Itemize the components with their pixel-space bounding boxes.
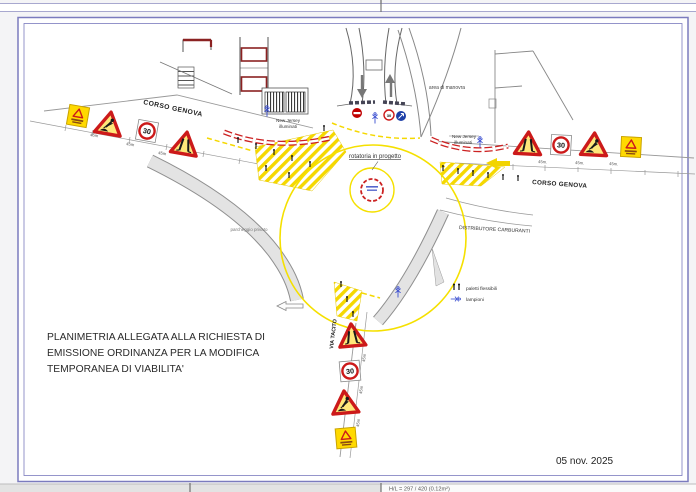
distance-label: 45m [361,353,367,362]
drawing-date: 05 nov. 2025 [556,456,614,467]
legend-lamps-label: lampioni [466,297,484,303]
speed-limit-30-sign [339,360,361,382]
sheet-size-info: H/L = 297 / 420 (0.12m²) [389,487,450,492]
label-new-jersey-east-line2: illuminati [454,140,472,145]
label-new-jersey-west-line2: illuminati [279,124,297,129]
mini-speed-limit-sign: 30 [384,110,394,120]
note-line-1: PLANIMETRIA ALLEGATA ALLA RICHIESTA DI [47,332,265,343]
distance-label: 45m [355,418,361,427]
speed-limit-30-sign [135,119,158,142]
distance-label: 45m. [575,160,585,165]
note-line-3: TEMPORANEA DI VIABILITA' [47,364,184,375]
speed-limit-30-sign [550,134,571,155]
planimetry-drawing: 30 [0,0,696,492]
label-area-di-manovra: area di manovra [429,85,465,91]
worksite-panel-sign [335,427,357,449]
blue-direction-sign-icon [396,111,406,121]
no-entry-sign-icon [352,108,362,118]
status-bar: H/L = 297 / 420 (0.12m²) [0,483,696,492]
distance-label: 45m [358,385,364,394]
worksite-panel-sign [66,104,89,127]
label-parcheggio-privato: parcheggio privato [230,227,268,232]
worksite-panel-sign [620,136,641,157]
distance-label: 45m. [538,159,548,164]
note-line-2: EMISSIONE ORDINANZA PER LA MODIFICA [47,348,259,359]
label-new-jersey-west-line1: New Jersey [276,118,301,123]
mini-speed-limit-value: 30 [387,113,392,118]
cad-drawing-viewport: 30 [0,0,696,492]
label-rotatoria-in-progetto: rotatoria in progetto [349,154,402,160]
legend-bollards-label: paletti flessibili [466,286,497,292]
label-new-jersey-east-line1: New Jersey [452,134,477,139]
distance-label: 45m. [609,161,619,166]
